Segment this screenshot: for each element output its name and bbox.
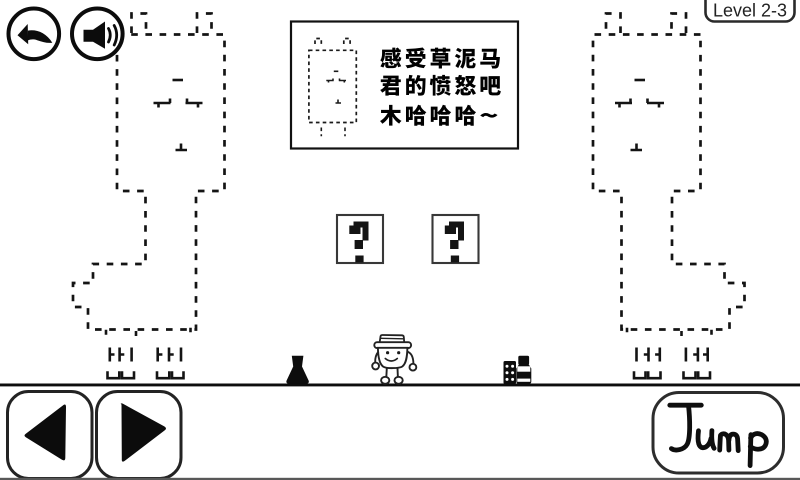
svg-text:Level 2-3: Level 2-3 bbox=[713, 1, 787, 21]
